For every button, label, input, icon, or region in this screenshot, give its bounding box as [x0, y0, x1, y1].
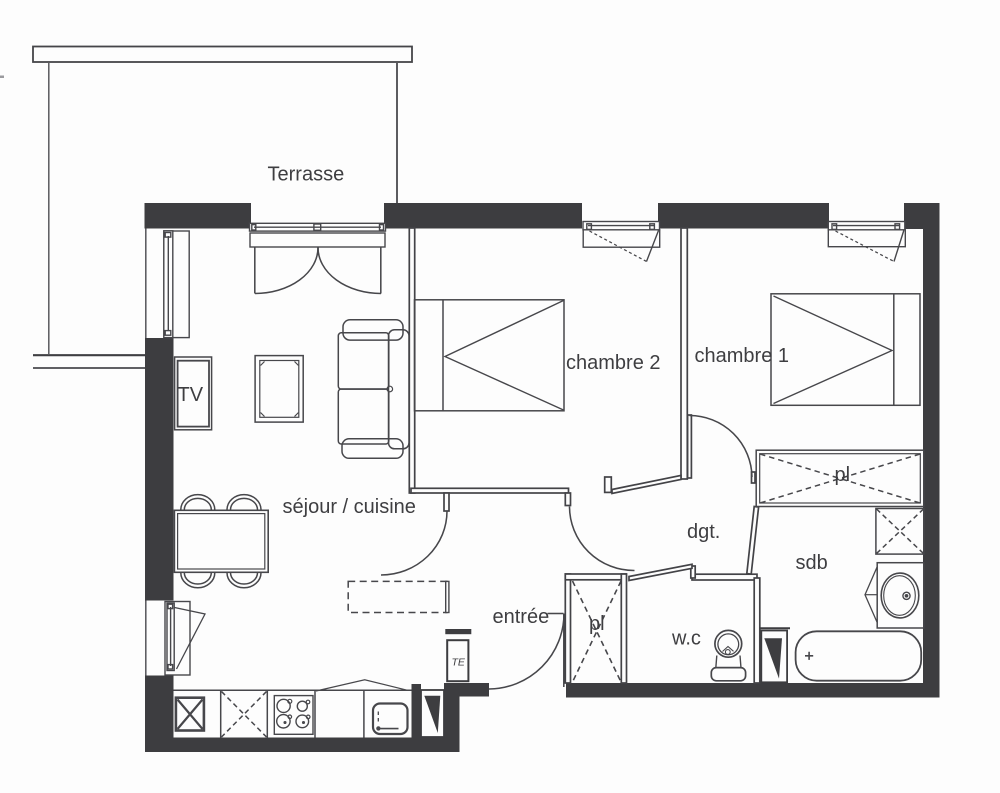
svg-text:entrée: entrée: [493, 606, 550, 628]
svg-text:chambre 2: chambre 2: [566, 352, 661, 374]
svg-text:dgt.: dgt.: [687, 521, 720, 543]
svg-text:TE: TE: [452, 657, 466, 669]
svg-text:séjour / cuisine: séjour / cuisine: [283, 496, 416, 518]
svg-text:sdb: sdb: [796, 552, 828, 574]
svg-text:Terrasse: Terrasse: [268, 164, 345, 186]
svg-text:w.c: w.c: [671, 628, 701, 650]
svg-text:chambre 1: chambre 1: [695, 345, 790, 367]
svg-text:pl: pl: [835, 464, 851, 486]
svg-text:pl: pl: [589, 613, 605, 635]
svg-text:TV: TV: [178, 384, 204, 406]
